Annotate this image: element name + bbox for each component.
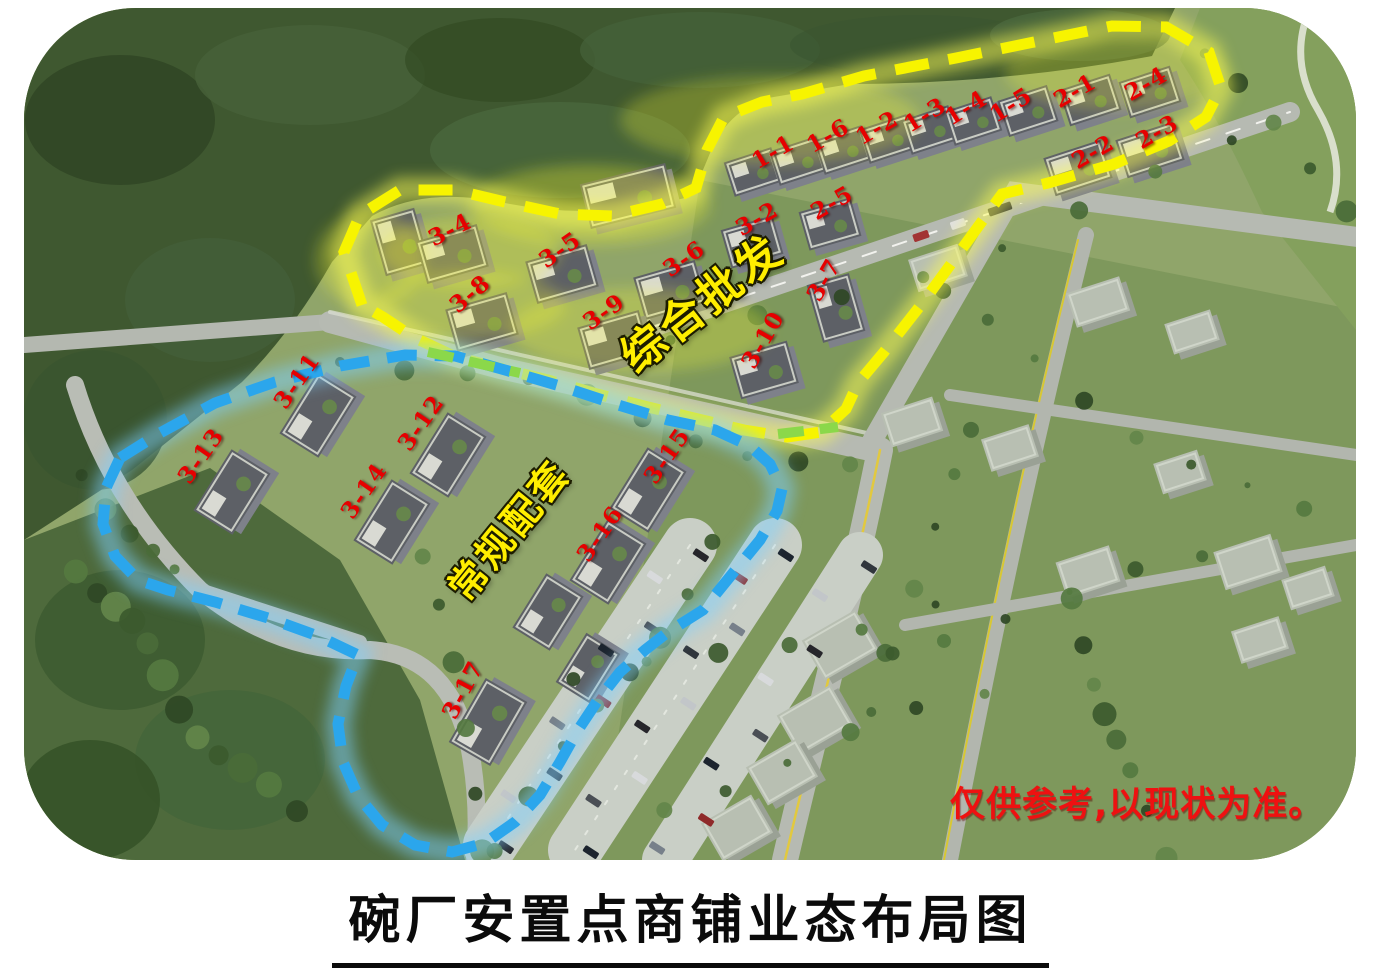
building-label-3-10: 3-10 xyxy=(736,307,790,374)
building-label-2-5: 2-5 xyxy=(806,180,858,226)
building-label-1-1: 1-1 xyxy=(747,129,799,175)
building-label-1-6: 1-6 xyxy=(802,113,854,159)
title-block: 碗厂安置点商铺业态布局图 xyxy=(0,878,1381,968)
building-label-3-15: 3-15 xyxy=(638,423,695,489)
building-label-3-5: 3-5 xyxy=(534,226,586,274)
building-label-2-2: 2-2 xyxy=(1067,129,1119,175)
annotation-layer: 仅供参考,以现状为准。 1-11-61-21-31-41-52-12-42-22… xyxy=(0,0,1381,975)
building-label-1-2: 1-2 xyxy=(851,105,903,151)
building-label-1-4: 1-4 xyxy=(940,85,992,132)
building-label-3-12: 3-12 xyxy=(392,390,449,456)
zone-label-standard: 常规配套 xyxy=(433,445,581,610)
building-label-3-13: 3-13 xyxy=(172,423,229,489)
building-label-3-7: 3-7 xyxy=(801,254,847,306)
building-label-3-4: 3-4 xyxy=(424,208,476,252)
building-label-1-5: 1-5 xyxy=(985,82,1037,129)
page-title: 碗厂安置点商铺业态布局图 xyxy=(332,878,1048,968)
building-label-3-14: 3-14 xyxy=(335,458,392,524)
building-label-2-3: 2-3 xyxy=(1131,109,1183,155)
building-label-3-11: 3-11 xyxy=(268,348,325,414)
building-label-2-1: 2-1 xyxy=(1049,68,1101,114)
building-label-3-8: 3-8 xyxy=(444,269,495,318)
building-label-3-16: 3-16 xyxy=(571,501,628,567)
disclaimer-note: 仅供参考,以现状为准。 xyxy=(950,776,1324,827)
building-label-3-17: 3-17 xyxy=(437,656,490,723)
building-label-2-4: 2-4 xyxy=(1120,61,1172,107)
